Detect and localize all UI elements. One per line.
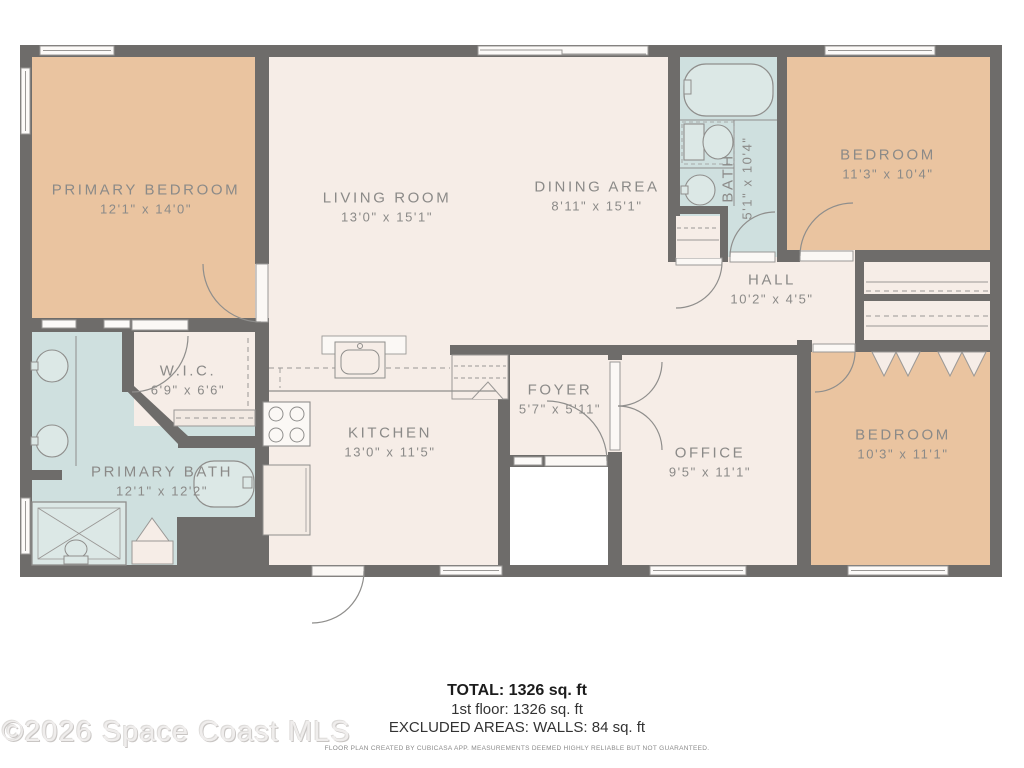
floor-plan-page: PRIMARY BEDROOM 12'1" x 14'0" LIVING ROO…: [0, 0, 1024, 768]
room-primary-bedroom: [32, 57, 255, 318]
floor-plan-drawing: [0, 0, 1024, 660]
toilet-icon: [703, 125, 733, 159]
toilet-icon: [65, 540, 87, 558]
mls-watermark: ©2026 Space Coast MLS: [2, 716, 351, 749]
kitchen-sink-icon: [335, 342, 385, 378]
bathtub-icon: [684, 64, 773, 116]
tub-faucet-icon: [684, 80, 691, 94]
fridge-icon: [263, 465, 310, 535]
room-bedroom-lower: [811, 352, 990, 565]
sink-icon: [36, 425, 68, 457]
sink-icon: [36, 350, 68, 382]
toilet-tank-icon: [684, 124, 704, 160]
porch-recess: [510, 467, 608, 577]
total-area-text: TOTAL: 1326 sq. ft: [0, 682, 1024, 700]
room-bedroom-upper: [787, 57, 990, 250]
sink-icon: [685, 175, 715, 205]
